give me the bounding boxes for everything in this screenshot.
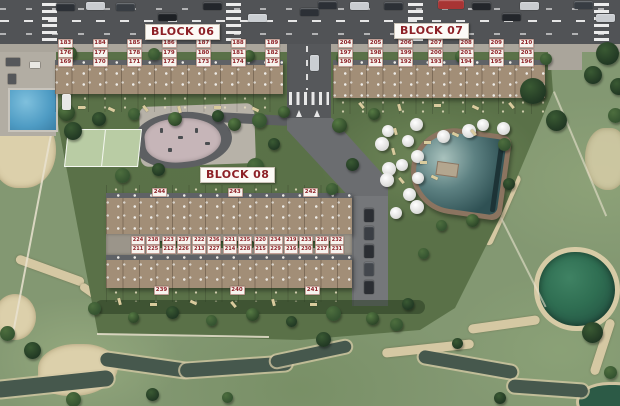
sun-lounger: [397, 104, 402, 112]
unit-label[interactable]: 216: [284, 245, 298, 254]
block08-south-unit-pairs: 2112252122262132272142282152292162302172…: [131, 245, 344, 254]
unit-label-group: 193: [428, 58, 443, 67]
tree: [546, 110, 567, 131]
tree: [326, 306, 341, 321]
sun-lounger: [310, 303, 317, 306]
unit-label-group: 170: [93, 58, 108, 67]
umbrella-icon: [396, 159, 408, 171]
unit-label[interactable]: 232: [330, 236, 344, 245]
car: [350, 2, 369, 10]
unit-label-group: 221235: [223, 236, 252, 245]
tree: [418, 248, 429, 259]
tree: [326, 183, 338, 195]
tree: [24, 342, 41, 359]
unit-label-group: 243: [228, 188, 243, 197]
sun-lounger: [108, 107, 116, 113]
tree: [366, 312, 379, 325]
tree: [66, 392, 81, 406]
tree: [0, 326, 15, 341]
unit-label-group: 211225: [131, 245, 160, 254]
car: [310, 55, 319, 71]
unit-label-group: 171: [127, 58, 142, 67]
tree: [582, 322, 603, 343]
unit-label-group: 177: [93, 49, 108, 58]
tree: [168, 112, 182, 126]
unit-label[interactable]: 178: [127, 49, 142, 58]
car: [364, 226, 374, 240]
unit-label-group: 205: [368, 39, 383, 48]
block07-unit-row-bottom: 190191192193194195196: [338, 58, 534, 67]
tree: [222, 392, 233, 403]
unit-label[interactable]: 227: [207, 245, 221, 254]
umbrella-icon: [403, 188, 416, 201]
block07-unit-row-top: 204205206207208209210: [338, 39, 534, 48]
tree: [540, 53, 552, 65]
unit-label[interactable]: 177: [93, 49, 108, 58]
unit-label[interactable]: 179: [162, 49, 177, 58]
unit-label[interactable]: 174: [231, 58, 246, 67]
unit-label-group: 216230: [284, 245, 313, 254]
unit-label-group: 201: [459, 49, 474, 58]
unit-label[interactable]: 170: [93, 58, 108, 67]
unit-label[interactable]: 205: [368, 39, 383, 48]
car: [318, 1, 337, 9]
tree: [206, 315, 217, 326]
unit-label-group: 210: [519, 39, 534, 48]
umbrella-icon: [402, 135, 414, 147]
block06-unit-row-top: 183184185186187188189: [58, 39, 280, 48]
car: [364, 208, 374, 222]
block06-unit-row-mid: 176177178179180181182: [58, 49, 280, 58]
umbrella-icon: [375, 137, 389, 151]
unit-label-group: 208: [459, 39, 474, 48]
unit-label-group: 239: [154, 286, 169, 295]
unit-label-group: 209: [489, 39, 504, 48]
unit-label-group: 185: [127, 39, 142, 48]
car: [502, 13, 521, 21]
unit-label[interactable]: 230: [299, 245, 313, 254]
block07-unit-row-mid: 197198199200201202203: [338, 49, 534, 58]
unit-label-group: 212226: [162, 245, 191, 254]
unit-label[interactable]: 208: [459, 39, 474, 48]
tree: [88, 302, 101, 315]
unit-label[interactable]: 239: [154, 286, 169, 295]
unit-label-group: 198: [368, 49, 383, 58]
block06-unit-row-bottom: 169170171172173174175: [58, 58, 280, 67]
unit-label-group: 219233: [284, 236, 313, 245]
car: [364, 244, 374, 258]
tree: [610, 78, 620, 95]
sun-lounger: [508, 102, 515, 109]
sun-lounger: [472, 105, 480, 111]
tree: [436, 220, 447, 231]
unit-label-group: 176: [58, 49, 73, 58]
block08-title: BLOCK 08: [200, 167, 275, 183]
car: [203, 2, 222, 10]
sun-lounger: [424, 141, 431, 144]
tree: [316, 332, 331, 347]
tree: [212, 110, 224, 122]
tree: [466, 214, 479, 227]
tree: [494, 392, 506, 404]
car: [300, 8, 319, 16]
unit-label-group: 223237: [162, 236, 191, 245]
block07-title: BLOCK 07: [394, 23, 469, 39]
car: [62, 94, 71, 110]
sun-lounger: [214, 106, 221, 109]
unit-label[interactable]: 182: [265, 49, 280, 58]
sun-lounger: [78, 106, 85, 109]
unit-label-group: 197: [338, 49, 353, 58]
unit-label[interactable]: 221: [223, 236, 237, 245]
unit-label-group: 187: [196, 39, 211, 48]
unit-label[interactable]: 236: [207, 236, 221, 245]
unit-label[interactable]: 209: [489, 39, 504, 48]
unit-label-group: 213227: [192, 245, 221, 254]
unit-label[interactable]: 244: [152, 188, 167, 197]
unit-label[interactable]: 171: [127, 58, 142, 67]
tree: [228, 118, 241, 131]
car: [86, 2, 105, 10]
car: [248, 14, 267, 22]
unit-label[interactable]: 219: [284, 236, 298, 245]
unit-label[interactable]: 197: [338, 49, 353, 58]
unit-label[interactable]: 195: [489, 58, 504, 67]
block08-north-unit-pairs: 2242382232372222362212352202342192332182…: [131, 236, 344, 245]
car: [472, 2, 491, 10]
tree: [128, 108, 140, 120]
sun-lounger: [190, 300, 198, 306]
umbrella-icon: [497, 122, 510, 135]
umbrella-icon: [410, 118, 423, 131]
tree: [128, 312, 139, 323]
sun-lounger: [358, 102, 365, 109]
unit-label-group: 206: [398, 39, 413, 48]
unit-label[interactable]: 215: [254, 245, 268, 254]
unit-label[interactable]: 225: [146, 245, 160, 254]
tree: [286, 316, 297, 327]
unit-label[interactable]: 190: [338, 58, 353, 67]
unit-label[interactable]: 188: [231, 39, 246, 48]
unit-label[interactable]: 234: [269, 236, 283, 245]
unit-label-group: 196: [519, 58, 534, 67]
sun-lounger: [452, 132, 460, 138]
unit-label[interactable]: 229: [269, 245, 283, 254]
unit-label[interactable]: 184: [93, 39, 108, 48]
tree: [596, 42, 619, 65]
sun-lounger: [434, 104, 441, 107]
unit-label-group: 178: [127, 49, 142, 58]
car: [364, 262, 374, 276]
unit-label[interactable]: 233: [299, 236, 313, 245]
unit-label[interactable]: 211: [131, 245, 145, 254]
block08-top-edge-units: 244243242: [152, 188, 318, 197]
unit-label-group: 175: [265, 58, 280, 67]
unit-label-group: 202: [489, 49, 504, 58]
unit-label[interactable]: 199: [398, 49, 413, 58]
umbrella-icon: [412, 172, 424, 184]
unit-label[interactable]: 206: [398, 39, 413, 48]
tree: [115, 168, 130, 183]
unit-label-group: 172: [162, 58, 177, 67]
tree: [278, 106, 290, 118]
sun-lounger: [393, 128, 398, 136]
car: [520, 2, 539, 10]
tree: [498, 138, 511, 151]
tree: [246, 308, 259, 321]
unit-label[interactable]: 220: [254, 236, 268, 245]
unit-label-group: 191: [368, 58, 383, 67]
unit-label[interactable]: 224: [131, 236, 145, 245]
unit-label[interactable]: 238: [146, 236, 160, 245]
umbrella-icon: [390, 207, 402, 219]
sun-lounger: [398, 177, 405, 184]
tree: [92, 112, 106, 126]
car: [384, 2, 403, 10]
unit-label[interactable]: 240: [230, 286, 245, 295]
tree: [503, 178, 515, 190]
unit-label-group: 184: [93, 39, 108, 48]
umbrella-icon: [382, 125, 394, 137]
umbrella-icon: [477, 119, 489, 131]
tree: [604, 366, 617, 379]
car: [574, 1, 593, 9]
unit-label[interactable]: 193: [428, 58, 443, 67]
unit-label[interactable]: 204: [338, 39, 353, 48]
unit-label[interactable]: 207: [428, 39, 443, 48]
unit-label[interactable]: 185: [127, 39, 142, 48]
sun-lounger: [150, 303, 157, 306]
unit-label[interactable]: 172: [162, 58, 177, 67]
unit-label-group: 207: [428, 39, 443, 48]
tree: [368, 108, 380, 120]
car: [56, 3, 75, 11]
unit-label-group: 218232: [315, 236, 344, 245]
unit-label[interactable]: 237: [177, 236, 191, 245]
unit-label-group: 199: [398, 49, 413, 58]
unit-label[interactable]: 192: [398, 58, 413, 67]
unit-label[interactable]: 194: [459, 58, 474, 67]
unit-label[interactable]: 187: [196, 39, 211, 48]
tree: [64, 122, 82, 140]
unit-label-group: 174: [231, 58, 246, 67]
tree: [146, 388, 159, 401]
car: [364, 280, 374, 294]
sun-lounger: [177, 106, 182, 114]
unit-label[interactable]: 169: [58, 58, 73, 67]
tree: [252, 113, 267, 128]
unit-label-group: 195: [489, 58, 504, 67]
sun-lounger: [142, 105, 149, 112]
unit-label[interactable]: 214: [223, 245, 237, 254]
unit-label[interactable]: 231: [330, 245, 344, 254]
unit-label-group: 169: [58, 58, 73, 67]
unit-label-group: 173: [196, 58, 211, 67]
unit-label[interactable]: 176: [58, 49, 73, 58]
unit-label[interactable]: 200: [428, 49, 443, 58]
unit-label-group: 217231: [315, 245, 344, 254]
tree: [584, 66, 602, 84]
unit-label[interactable]: 222: [192, 236, 206, 245]
umbrella-icon: [437, 130, 450, 143]
unit-label[interactable]: 191: [368, 58, 383, 67]
unit-label-group: 241: [305, 286, 320, 295]
tree: [152, 163, 165, 176]
sun-lounger: [271, 299, 276, 307]
unit-label-group: 194: [459, 58, 474, 67]
sun-lounger: [230, 301, 237, 308]
unit-label-group: 203: [519, 49, 534, 58]
sun-lounger: [252, 107, 260, 113]
unit-label[interactable]: 180: [196, 49, 211, 58]
unit-label-group: 220234: [254, 236, 283, 245]
unit-label[interactable]: 217: [315, 245, 329, 254]
unit-label[interactable]: 196: [519, 58, 534, 67]
unit-label[interactable]: 212: [162, 245, 176, 254]
sun-lounger: [431, 175, 439, 181]
unit-label-group: 188: [231, 39, 246, 48]
unit-label-group: 200: [428, 49, 443, 58]
unit-label[interactable]: 213: [192, 245, 206, 254]
tree: [452, 338, 463, 349]
unit-label[interactable]: 223: [162, 236, 176, 245]
car: [158, 13, 177, 21]
tree: [268, 138, 280, 150]
masterplan-aerial-view: 183184185186187188189 176177178179180181…: [0, 0, 620, 406]
unit-label[interactable]: 243: [228, 188, 243, 197]
car: [116, 3, 135, 11]
umbrella-icon: [380, 173, 394, 187]
unit-label-group: 214228: [223, 245, 252, 254]
unit-label-group: 240: [230, 286, 245, 295]
unit-label-group: 192: [398, 58, 413, 67]
tree: [332, 118, 347, 133]
unit-label[interactable]: 203: [519, 49, 534, 58]
tree: [166, 306, 179, 319]
tree: [520, 78, 546, 104]
unit-label-group: 180: [196, 49, 211, 58]
unit-label-group: 183: [58, 39, 73, 48]
block08-bottom-edge-units: 239240241: [154, 286, 320, 295]
unit-label-group: 204: [338, 39, 353, 48]
unit-label-group: 244: [152, 188, 167, 197]
unit-label[interactable]: 226: [177, 245, 191, 254]
unit-label[interactable]: 241: [305, 286, 320, 295]
tree: [390, 318, 403, 331]
unit-label[interactable]: 173: [196, 58, 211, 67]
unit-label[interactable]: 235: [238, 236, 252, 245]
unit-label[interactable]: 186: [162, 39, 177, 48]
unit-label-group: 190: [338, 58, 353, 67]
sun-lounger: [420, 161, 427, 164]
sun-lounger: [117, 298, 122, 306]
unit-label-group: 189: [265, 39, 280, 48]
unit-label[interactable]: 175: [265, 58, 280, 67]
unit-label[interactable]: 210: [519, 39, 534, 48]
unit-label-group: 181: [231, 49, 246, 58]
unit-label-group: 222236: [192, 236, 221, 245]
unit-label-group: 224238: [131, 236, 160, 245]
unit-label[interactable]: 242: [303, 188, 318, 197]
tree: [402, 298, 414, 310]
tree: [608, 108, 620, 123]
unit-label-group: 242: [303, 188, 318, 197]
unit-label[interactable]: 228: [238, 245, 252, 254]
unit-label-group: 179: [162, 49, 177, 58]
unit-label[interactable]: 218: [315, 236, 329, 245]
tree: [346, 158, 359, 171]
unit-label[interactable]: 189: [265, 39, 280, 48]
car: [596, 14, 615, 22]
unit-label[interactable]: 181: [231, 49, 246, 58]
unit-label[interactable]: 198: [368, 49, 383, 58]
unit-label[interactable]: 183: [58, 39, 73, 48]
unit-label-group: 186: [162, 39, 177, 48]
umbrella-icon: [410, 200, 424, 214]
block06-title: BLOCK 06: [145, 24, 220, 40]
unit-label-group: 182: [265, 49, 280, 58]
unit-label[interactable]: 202: [489, 49, 504, 58]
unit-label-group: 215229: [254, 245, 283, 254]
sun-lounger: [391, 148, 396, 156]
car: [438, 0, 464, 9]
unit-label[interactable]: 201: [459, 49, 474, 58]
